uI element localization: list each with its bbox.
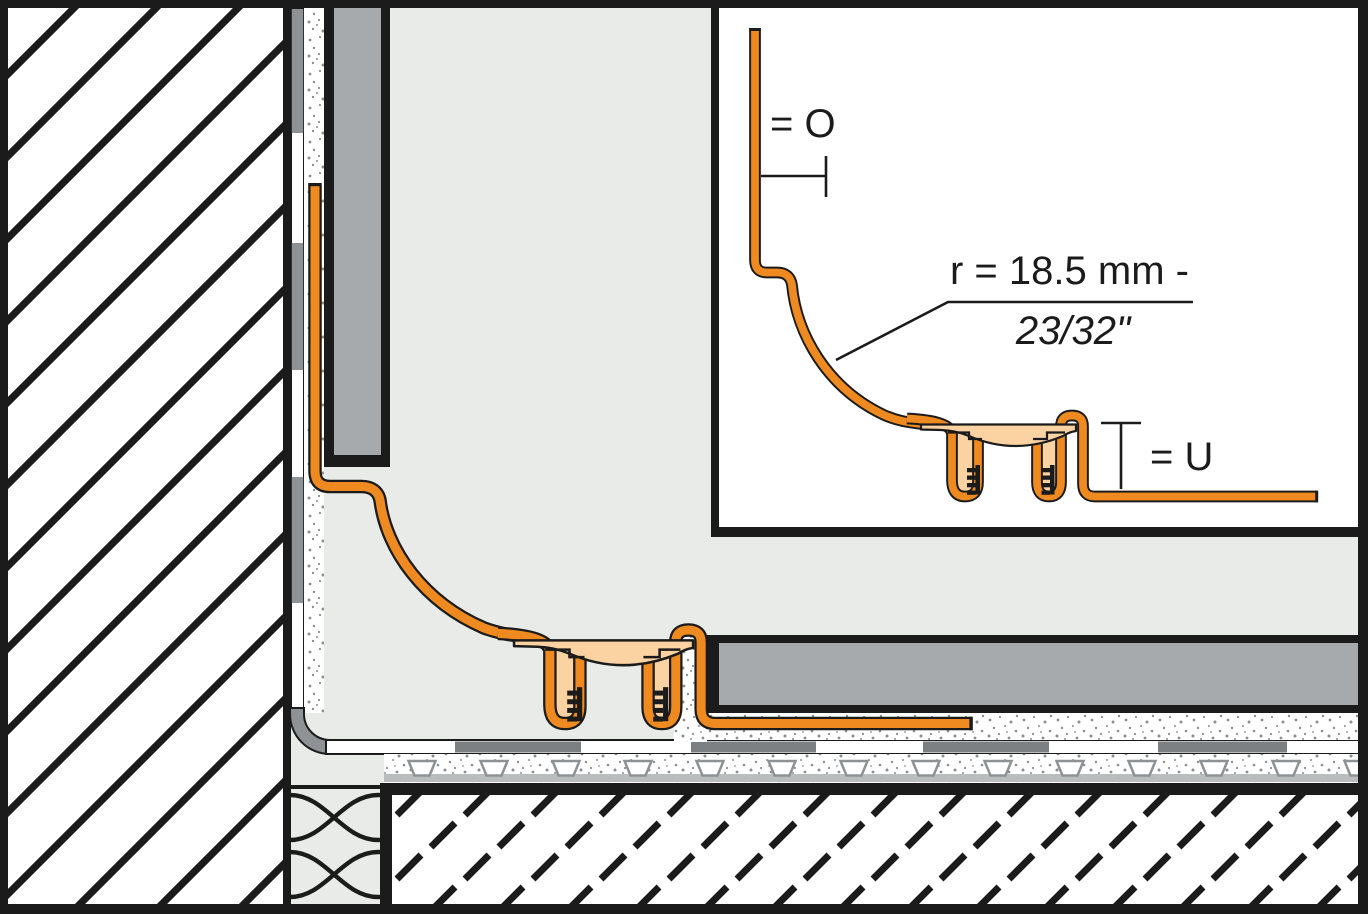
dimension-u-label: = U [1150,435,1213,479]
technical-drawing-page: = O r = 18.5 mm - 23/32" = U [0,0,1368,914]
main-wall-leg-end-cap [308,183,322,186]
cove-profile-section-drawing: = O r = 18.5 mm - 23/32" = U [0,0,1368,914]
inset-border-bottom [711,527,1368,537]
edge-insulation-strip [288,785,382,905]
detail-wall-leg-end-cap [749,28,761,31]
masonry-wall [8,8,291,905]
radius-imperial-label: 23/32" [1015,309,1132,353]
wall-face-line [283,8,291,905]
wall-tile [324,8,390,467]
floor-tile [707,635,1360,713]
detail-inset-panel: = O r = 18.5 mm - 23/32" = U [711,0,1368,537]
dimension-o-label: = O [770,102,836,146]
floor-bonding-row [326,740,1360,754]
radius-label: r = 18.5 mm - [950,249,1189,293]
uncoupling-membrane-layer [384,754,1368,785]
inset-border-left [711,0,719,537]
wall-bonding-strip [291,8,304,712]
floor-screed [380,783,1360,914]
